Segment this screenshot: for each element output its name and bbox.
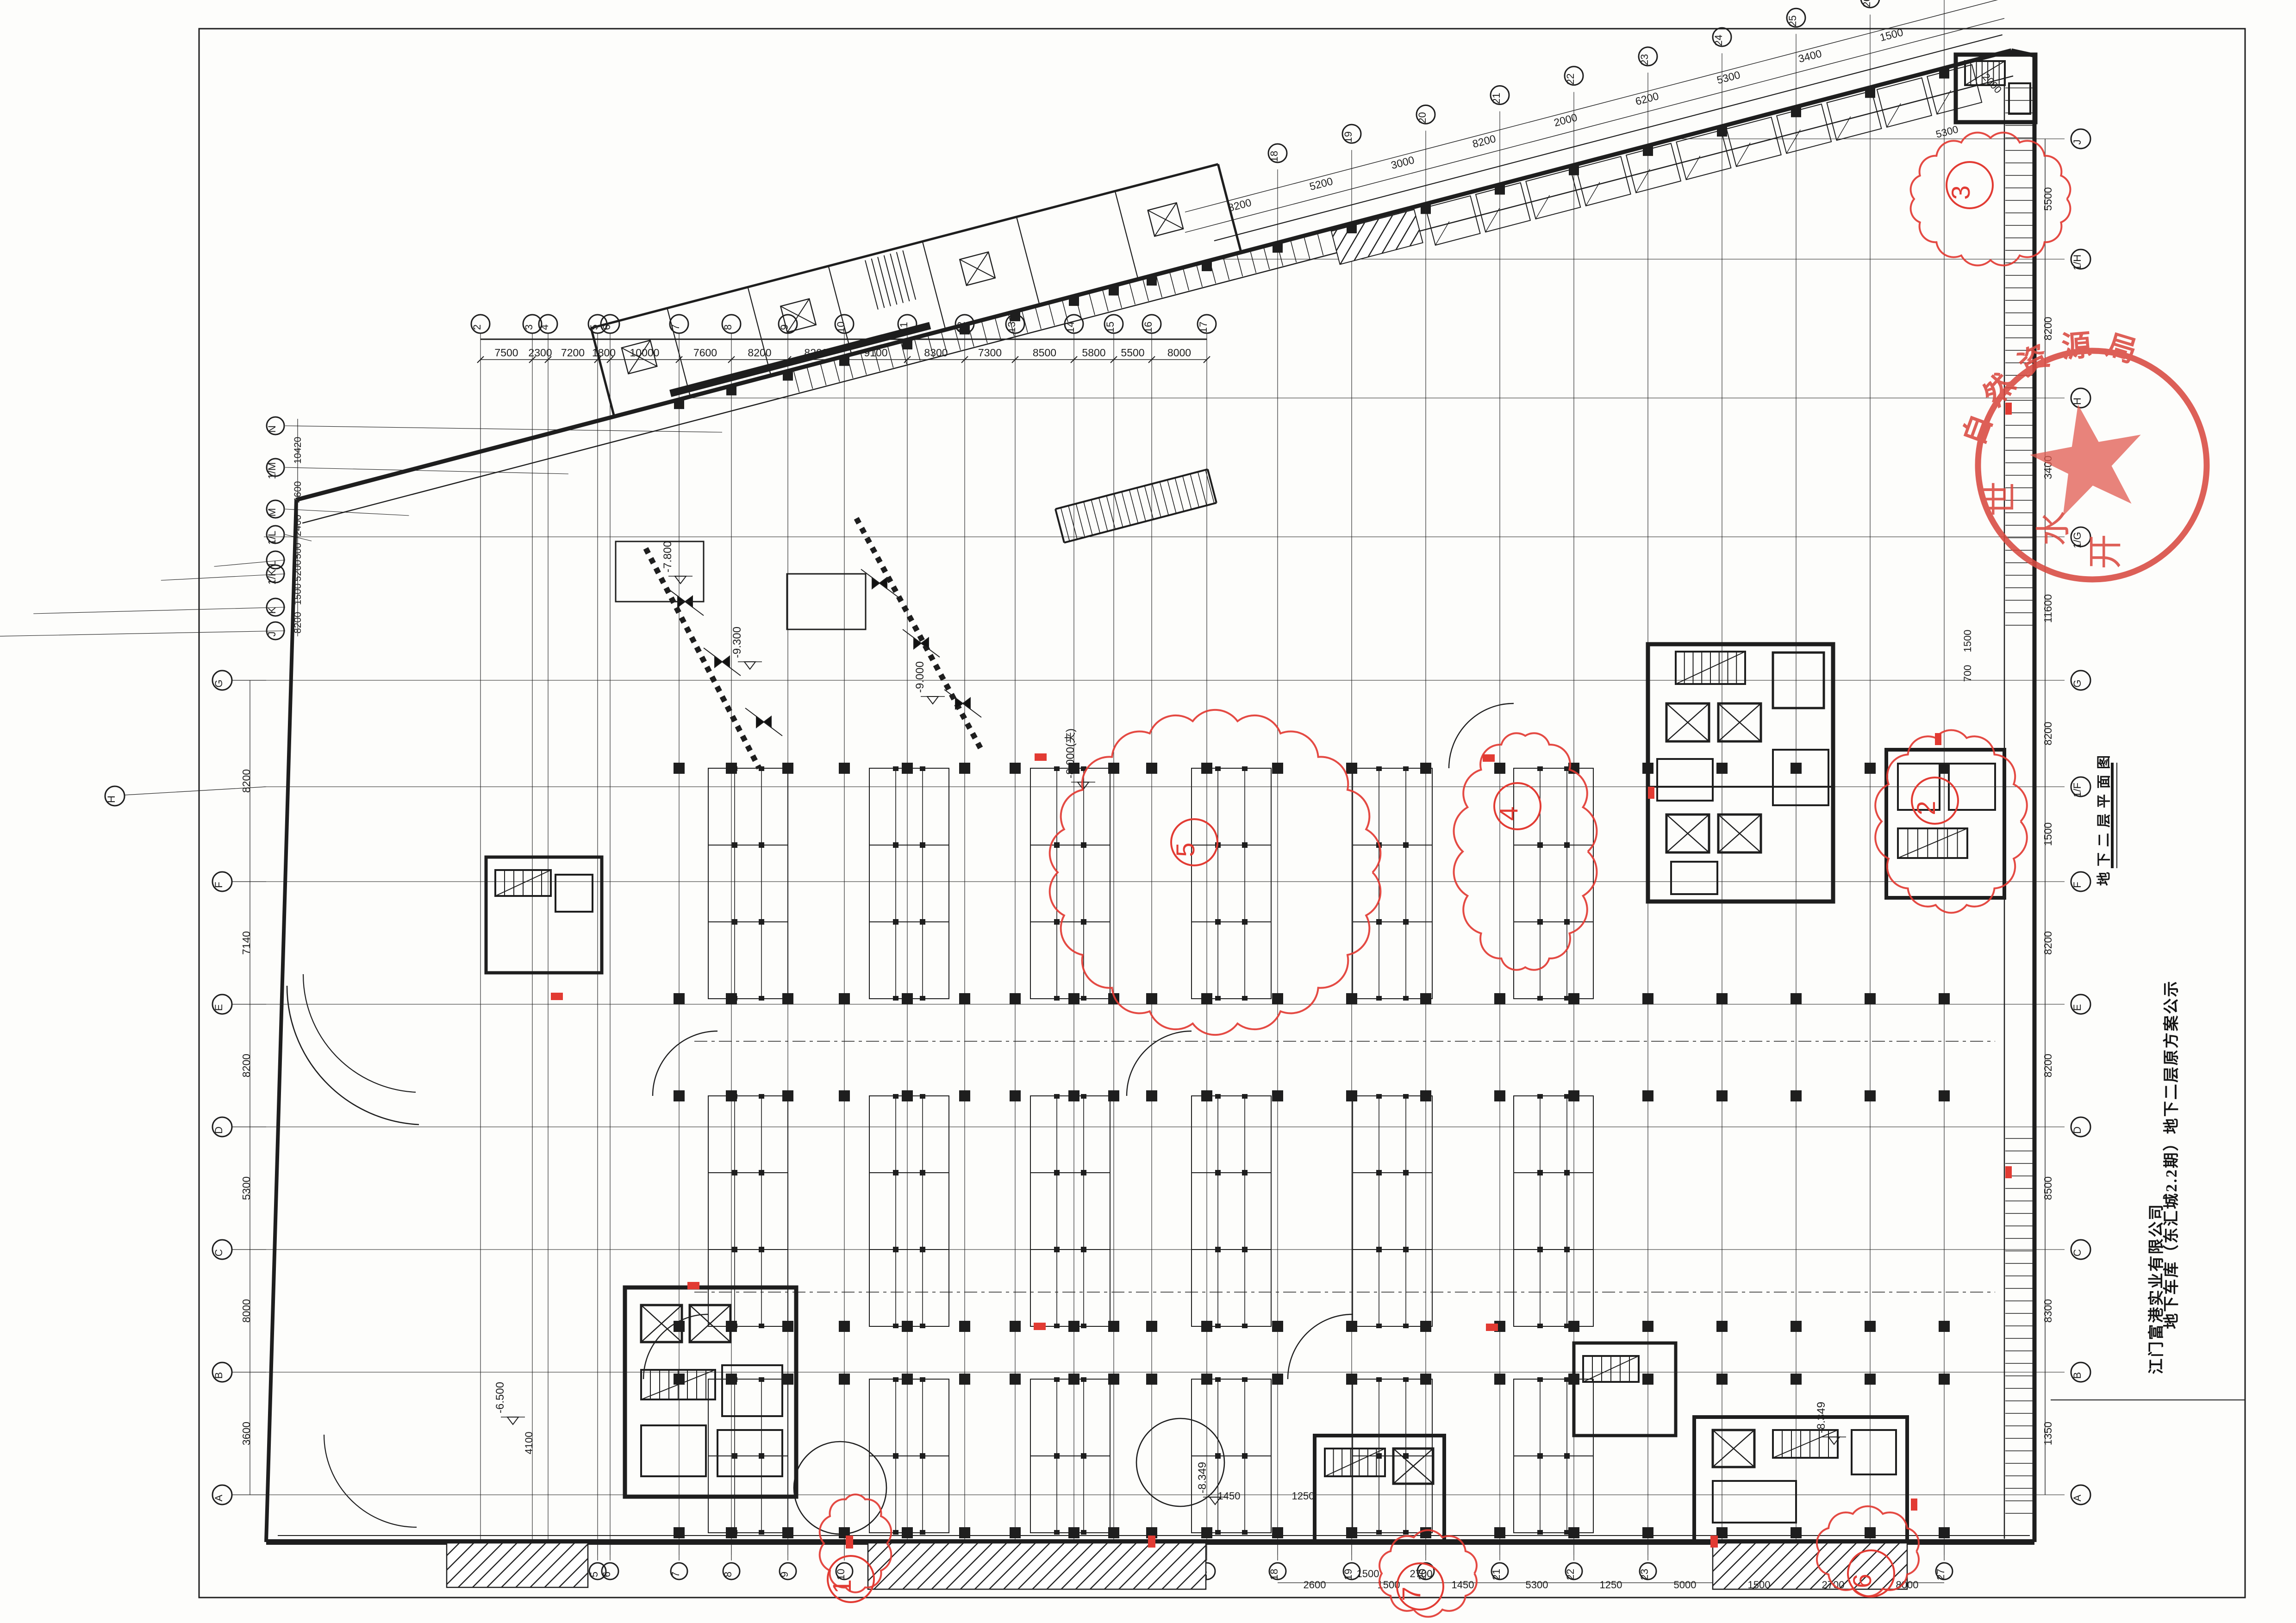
svg-text:27: 27 [1935, 1569, 1947, 1580]
project-title: 地下车库（东汇城2.2期）地下二层原方案公示 [2159, 980, 2181, 1329]
svg-text:G: G [2071, 679, 2083, 687]
svg-text:G: G [213, 679, 225, 687]
svg-text:3: 3 [523, 324, 535, 330]
svg-text:1/F: 1/F [2071, 783, 2083, 797]
svg-text:2600: 2600 [1304, 1579, 1326, 1591]
svg-text:N: N [266, 425, 278, 433]
svg-text:19: 19 [1342, 1569, 1354, 1580]
svg-text:1500: 1500 [1962, 630, 1973, 653]
svg-text:11600: 11600 [2042, 594, 2054, 623]
svg-text:-6.500: -6.500 [494, 1382, 506, 1413]
svg-text:1500: 1500 [1748, 1579, 1771, 1591]
svg-text:5500: 5500 [2042, 187, 2054, 211]
svg-text:8000: 8000 [1167, 347, 1191, 359]
svg-text:自然资源局: 自然资源局 [1957, 328, 2152, 449]
svg-text:7: 7 [670, 1572, 681, 1577]
svg-text:5200: 5200 [293, 560, 303, 582]
svg-text:A: A [213, 1494, 225, 1501]
cores-layer [486, 55, 2035, 1541]
svg-text:E: E [2071, 1004, 2083, 1011]
svg-text:B: B [2071, 1372, 2083, 1379]
svg-text:5: 5 [1171, 842, 1200, 857]
svg-text:J: J [266, 632, 278, 637]
svg-text:D: D [2071, 1126, 2083, 1134]
svg-text:E: E [213, 1004, 225, 1011]
svg-text:25: 25 [1787, 15, 1798, 26]
svg-text:10420: 10420 [293, 437, 303, 464]
svg-text:1500: 1500 [1357, 1568, 1379, 1579]
svg-text:6: 6 [1847, 1573, 1877, 1588]
svg-text:C: C [2071, 1249, 2083, 1256]
svg-text:H: H [106, 796, 117, 803]
drawing-sheet: 2345678910111213141516171819202122232425… [0, 0, 2296, 1623]
svg-text:3: 3 [1946, 185, 1975, 199]
svg-text:2: 2 [1911, 801, 1940, 815]
svg-text:1800: 1800 [592, 347, 616, 359]
svg-text:8200: 8200 [2042, 931, 2054, 955]
svg-text:5800: 5800 [1082, 347, 1105, 359]
svg-text:4100: 4100 [523, 1432, 535, 1455]
svg-text:F: F [2071, 882, 2083, 888]
svg-text:8200: 8200 [748, 347, 771, 359]
svg-text:17: 17 [1198, 322, 1209, 333]
svg-text:-7.800: -7.800 [661, 541, 674, 572]
svg-text:J: J [2071, 140, 2083, 145]
svg-text:6: 6 [601, 1572, 612, 1577]
svg-text:5300: 5300 [1526, 1579, 1548, 1591]
svg-text:D: D [213, 1126, 225, 1134]
north-band [273, 0, 2018, 540]
svg-text:1450: 1450 [1452, 1579, 1474, 1591]
svg-text:2000: 2000 [1553, 111, 1578, 129]
svg-text:1/M: 1/M [266, 462, 278, 479]
svg-text:A: A [2071, 1494, 2083, 1501]
svg-text:-9.300: -9.300 [731, 627, 743, 658]
svg-text:-8.349: -8.349 [1815, 1402, 1828, 1433]
svg-text:1/K: 1/K [266, 569, 278, 585]
stamp-arc-text: 自然资源局 [1957, 328, 2152, 449]
svg-text:21: 21 [1491, 93, 1502, 104]
svg-text:1450: 1450 [1218, 1490, 1241, 1502]
svg-text:18: 18 [1268, 151, 1280, 162]
svg-text:H: H [2071, 398, 2083, 405]
floor-plan-svg: 2345678910111213141516171819202122232425… [0, 0, 2296, 1623]
svg-text:8200: 8200 [1471, 132, 1497, 150]
svg-text:7600: 7600 [693, 347, 717, 359]
svg-text:7500: 7500 [494, 347, 518, 359]
svg-text:4600: 4600 [293, 481, 303, 503]
svg-text:2700: 2700 [1410, 1568, 1433, 1579]
svg-text:C: C [213, 1249, 225, 1256]
svg-text:-8.000(夹): -8.000(夹) [1064, 728, 1077, 778]
svg-text:19: 19 [1342, 131, 1354, 143]
svg-text:8300: 8300 [2042, 1299, 2054, 1323]
svg-text:18: 18 [1268, 1569, 1280, 1580]
svg-text:5000: 5000 [1674, 1579, 1697, 1591]
svg-text:15: 15 [1104, 322, 1116, 333]
svg-text:B: B [213, 1372, 225, 1379]
svg-text:8200: 8200 [1227, 196, 1253, 214]
svg-text:8500: 8500 [1033, 347, 1056, 359]
dimensions-layer: 7500230072001800100007600820082009100830… [240, 26, 2054, 1591]
svg-text:26: 26 [1861, 0, 1872, 7]
svg-text:8: 8 [722, 324, 734, 330]
svg-text:1250: 1250 [1600, 1579, 1622, 1591]
svg-text:5300: 5300 [1934, 123, 1959, 140]
svg-text:9100: 9100 [864, 347, 887, 359]
drawing-title-label: 地下二层平面图 [2092, 750, 2113, 886]
svg-text:8200: 8200 [240, 1054, 252, 1077]
svg-text:世: 世 [1981, 481, 2021, 516]
walls-layer [199, 0, 2245, 1598]
svg-text:-9.000: -9.000 [914, 661, 926, 693]
svg-text:9: 9 [779, 324, 790, 330]
svg-text:2: 2 [471, 324, 483, 330]
svg-text:8200: 8200 [2042, 721, 2054, 745]
red-markups-layer: 3542176 [551, 133, 2070, 1617]
svg-text:8200: 8200 [240, 769, 252, 793]
svg-text:M: M [266, 508, 278, 516]
svg-text:8200: 8200 [293, 612, 303, 634]
svg-text:9: 9 [779, 1572, 790, 1577]
svg-text:3600: 3600 [240, 1422, 252, 1445]
svg-text:3000: 3000 [1390, 154, 1416, 171]
svg-text:2400: 2400 [293, 515, 303, 536]
svg-text:K: K [266, 607, 278, 614]
svg-text:8500: 8500 [2042, 1176, 2054, 1200]
svg-text:23: 23 [1639, 1569, 1650, 1580]
svg-text:1350: 1350 [2042, 1422, 2054, 1445]
svg-text:21: 21 [1491, 1569, 1502, 1580]
svg-text:10: 10 [835, 1569, 847, 1580]
svg-text:16: 16 [1142, 322, 1154, 333]
svg-text:24: 24 [1713, 35, 1724, 46]
svg-text:1/L: 1/L [266, 531, 278, 545]
svg-text:1500: 1500 [2042, 822, 2054, 846]
svg-text:4: 4 [1494, 806, 1523, 821]
svg-text:6200: 6200 [1634, 90, 1660, 107]
svg-text:8: 8 [722, 1572, 734, 1577]
svg-text:开: 开 [2086, 534, 2125, 569]
svg-text:1250: 1250 [1292, 1490, 1315, 1502]
svg-text:5500: 5500 [1121, 347, 1144, 359]
svg-text:8300: 8300 [924, 347, 948, 359]
svg-text:500: 500 [293, 543, 303, 559]
svg-text:F: F [213, 882, 225, 888]
svg-text:23: 23 [1639, 54, 1650, 65]
svg-text:7300: 7300 [978, 347, 1002, 359]
grid-layer: 2345678910111213141516171819202122232425… [0, 0, 2090, 1583]
svg-text:-8.349: -8.349 [1196, 1462, 1209, 1493]
svg-text:5: 5 [588, 1572, 600, 1577]
svg-text:4: 4 [539, 324, 550, 330]
svg-text:1500: 1500 [293, 584, 303, 605]
drawing-title-underline [2111, 763, 2114, 868]
svg-text:7140: 7140 [240, 931, 252, 955]
svg-text:7: 7 [1397, 1586, 1426, 1601]
svg-text:8000: 8000 [1896, 1579, 1919, 1591]
svg-text:1/H: 1/H [2071, 255, 2083, 270]
svg-text:5300: 5300 [1716, 68, 1741, 86]
svg-text:22: 22 [1565, 73, 1576, 84]
svg-text:水: 水 [2034, 511, 2073, 546]
svg-text:8200: 8200 [804, 347, 828, 359]
svg-text:5300: 5300 [240, 1176, 252, 1200]
svg-text:3400: 3400 [1797, 47, 1823, 65]
svg-text:700: 700 [1962, 665, 1973, 682]
svg-text:20: 20 [1416, 112, 1428, 123]
svg-text:8200: 8200 [2042, 1054, 2054, 1077]
svg-text:8000: 8000 [240, 1299, 252, 1323]
svg-text:5200: 5200 [1308, 175, 1334, 193]
drawing-title-underline-thin [2116, 763, 2117, 868]
svg-text:22: 22 [1565, 1569, 1576, 1580]
svg-text:7200: 7200 [561, 347, 585, 359]
svg-text:2300: 2300 [528, 347, 552, 359]
svg-text:1: 1 [827, 1579, 856, 1593]
svg-text:10000: 10000 [630, 347, 660, 359]
